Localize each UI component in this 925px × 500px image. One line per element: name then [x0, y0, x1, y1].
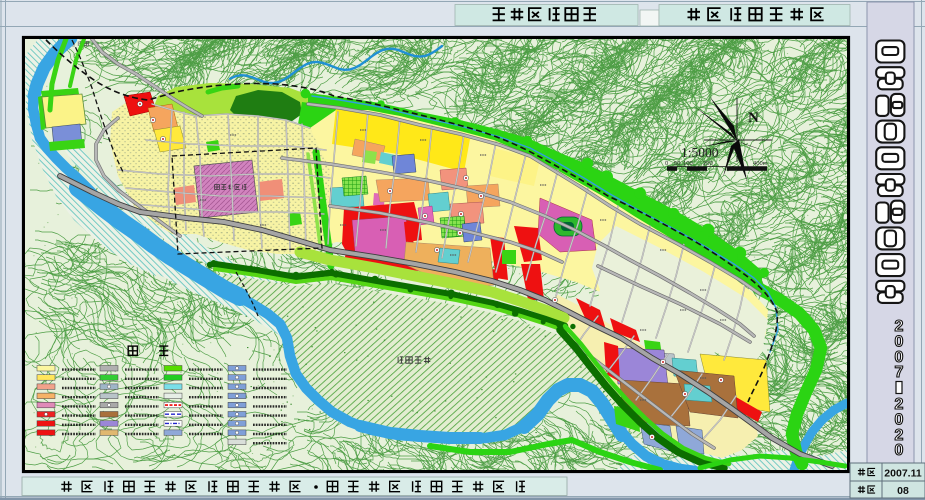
svg-text:1:5000: 1:5000 — [681, 145, 719, 160]
svg-text:400m: 400m — [753, 161, 768, 167]
svg-text:0: 0 — [665, 161, 668, 167]
svg-text:N: N — [748, 110, 759, 126]
svg-text:0: 0 — [895, 442, 904, 459]
svg-text:200: 200 — [703, 161, 713, 167]
svg-text:08: 08 — [897, 485, 909, 497]
svg-text:2007.11: 2007.11 — [884, 468, 922, 480]
svg-text:100: 100 — [683, 161, 693, 167]
svg-text:50: 50 — [674, 161, 680, 167]
svg-text:7: 7 — [895, 364, 904, 381]
